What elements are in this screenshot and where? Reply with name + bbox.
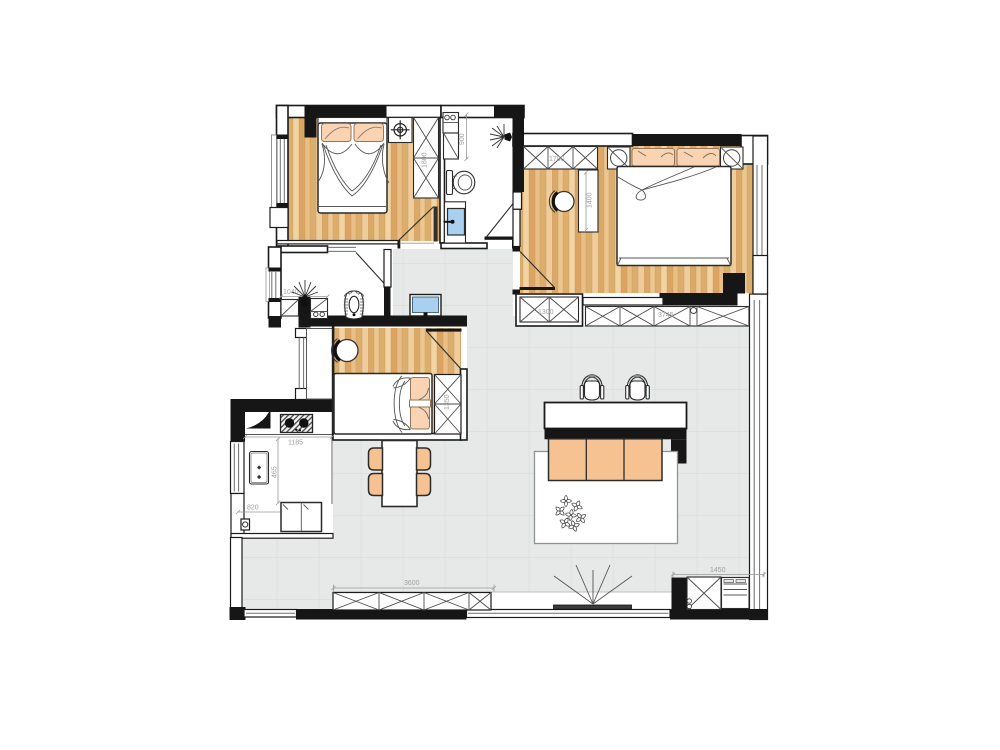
svg-text:900: 900 (459, 133, 466, 145)
svg-text:1040: 1040 (283, 289, 299, 296)
svg-text:1185: 1185 (288, 440, 303, 447)
svg-text:3745: 3745 (658, 312, 674, 319)
svg-text:1700: 1700 (549, 156, 565, 163)
svg-text:820: 820 (247, 505, 259, 512)
svg-text:1450: 1450 (710, 567, 726, 574)
svg-text:3600: 3600 (404, 580, 420, 587)
svg-text:1300: 1300 (538, 309, 554, 316)
svg-text:465: 465 (272, 466, 279, 478)
svg-text:1400: 1400 (587, 192, 594, 208)
svg-text:1800: 1800 (422, 152, 429, 168)
svg-text:1350: 1350 (444, 394, 451, 410)
